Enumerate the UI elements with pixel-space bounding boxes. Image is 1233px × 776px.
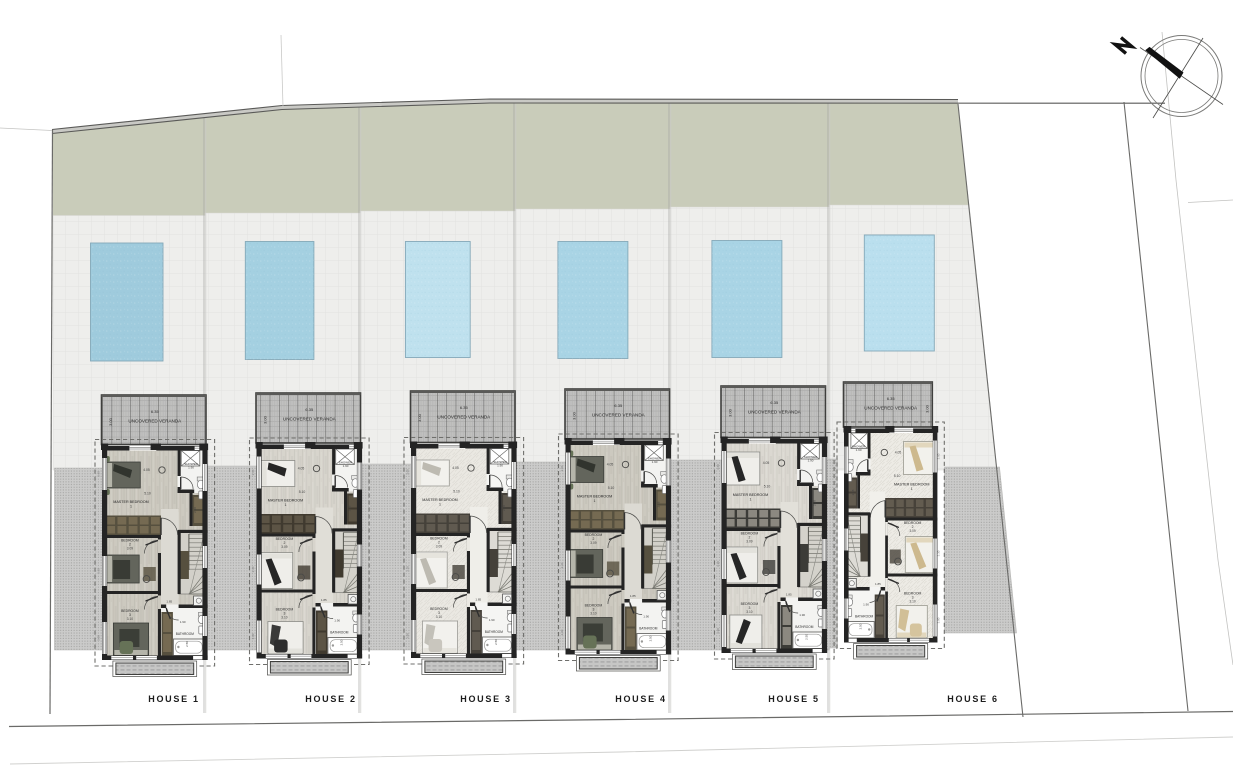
svg-text:1.90: 1.90: [652, 460, 658, 464]
svg-text:MASTER BEDROOM: MASTER BEDROOM: [577, 495, 612, 499]
svg-text:1: 1: [130, 505, 132, 509]
svg-text:3.00: 3.00: [727, 408, 732, 417]
svg-text:1.85: 1.85: [166, 600, 172, 604]
svg-text:6.35: 6.35: [614, 403, 623, 408]
svg-text:3.30: 3.30: [405, 566, 409, 572]
svg-text:1.85: 1.85: [875, 582, 881, 586]
svg-text:BATHROOM: BATHROOM: [639, 627, 658, 631]
svg-text:BATHROOM: BATHROOM: [855, 615, 874, 619]
svg-text:1.90: 1.90: [188, 466, 194, 470]
svg-text:3.10: 3.10: [746, 610, 752, 614]
svg-text:3.00: 3.00: [262, 415, 267, 424]
svg-text:1: 1: [750, 498, 752, 502]
svg-text:1.90: 1.90: [799, 613, 805, 617]
svg-text:1.85: 1.85: [475, 598, 481, 602]
svg-text:3.30: 3.30: [251, 566, 255, 572]
svg-text:BATHROOM: BATHROOM: [795, 625, 814, 629]
svg-text:3.09: 3.09: [909, 529, 915, 533]
svg-text:1: 1: [911, 487, 913, 491]
svg-text:3.30: 3.30: [716, 561, 720, 567]
svg-text:1: 1: [439, 503, 441, 507]
svg-text:3.90: 3.90: [716, 628, 720, 634]
svg-text:3.09: 3.09: [436, 545, 442, 549]
svg-text:3.00: 3.00: [108, 417, 113, 426]
svg-text:HOUSE 4: HOUSE 4: [615, 694, 666, 704]
svg-text:2.50: 2.50: [648, 635, 652, 641]
svg-text:1.85: 1.85: [786, 593, 792, 597]
svg-text:UNCOVERED VERANDA: UNCOVERED VERANDA: [128, 419, 182, 424]
svg-text:3.60: 3.60: [560, 465, 564, 471]
svg-text:3.10: 3.10: [127, 617, 133, 621]
svg-text:UNCOVERED VERANDA: UNCOVERED VERANDA: [748, 410, 802, 415]
svg-text:2.50: 2.50: [804, 634, 808, 640]
svg-text:HOUSE 1: HOUSE 1: [148, 694, 199, 704]
svg-text:1.90: 1.90: [863, 603, 869, 607]
svg-text:3.90: 3.90: [560, 629, 564, 635]
svg-text:3.09: 3.09: [590, 541, 596, 545]
svg-text:2.18: 2.18: [851, 489, 855, 495]
svg-text:3.30: 3.30: [96, 568, 100, 574]
svg-text:MASTER BEDROOM: MASTER BEDROOM: [113, 500, 148, 504]
svg-text:1.90: 1.90: [489, 618, 495, 622]
svg-text:3.60: 3.60: [937, 453, 941, 459]
svg-text:3.10: 3.10: [590, 612, 596, 616]
svg-text:BATHROOM: BATHROOM: [330, 631, 349, 635]
svg-text:UNCOVERED VERANDA: UNCOVERED VERANDA: [437, 415, 491, 420]
svg-text:6.35: 6.35: [770, 400, 779, 405]
svg-text:1.90: 1.90: [808, 459, 814, 463]
svg-text:3.90: 3.90: [96, 635, 100, 641]
svg-text:6.35: 6.35: [460, 405, 469, 410]
svg-text:4.05: 4.05: [452, 466, 459, 470]
svg-text:3.90: 3.90: [937, 617, 941, 623]
svg-text:2.18: 2.18: [657, 501, 661, 507]
svg-text:3.00: 3.00: [417, 413, 422, 422]
svg-text:5.10: 5.10: [608, 486, 615, 490]
svg-text:3.60: 3.60: [716, 464, 720, 470]
svg-text:3.09: 3.09: [746, 540, 752, 544]
svg-text:6.35: 6.35: [305, 407, 314, 412]
svg-text:UNCOVERED VERANDA: UNCOVERED VERANDA: [864, 406, 918, 411]
svg-text:BATHROOM: BATHROOM: [485, 630, 504, 634]
svg-text:1.90: 1.90: [180, 620, 186, 624]
svg-text:3.09: 3.09: [127, 547, 133, 551]
svg-text:3.09: 3.09: [281, 545, 287, 549]
svg-text:6.35: 6.35: [887, 396, 896, 401]
svg-text:MASTER BEDROOM: MASTER BEDROOM: [268, 499, 303, 503]
svg-text:3.10: 3.10: [909, 600, 915, 604]
svg-text:4.05: 4.05: [143, 468, 150, 472]
svg-text:6.35: 6.35: [151, 409, 160, 414]
svg-text:1.85: 1.85: [321, 598, 327, 602]
svg-text:4.05: 4.05: [298, 467, 305, 471]
svg-text:4.05: 4.05: [763, 461, 770, 465]
svg-text:3.60: 3.60: [251, 469, 255, 475]
svg-text:BATHROOM: BATHROOM: [176, 632, 195, 636]
svg-text:1.90: 1.90: [643, 615, 649, 619]
svg-text:4.05: 4.05: [607, 463, 614, 467]
svg-text:3.10: 3.10: [281, 616, 287, 620]
svg-text:2.50: 2.50: [185, 641, 189, 647]
svg-text:5.10: 5.10: [894, 474, 901, 478]
svg-text:HOUSE 5: HOUSE 5: [768, 694, 819, 704]
svg-text:UNCOVERED VERANDA: UNCOVERED VERANDA: [592, 413, 646, 418]
svg-text:HOUSE 2: HOUSE 2: [305, 694, 356, 704]
svg-text:1.90: 1.90: [343, 464, 349, 468]
svg-text:4.05: 4.05: [895, 451, 902, 455]
svg-text:MASTER BEDROOM: MASTER BEDROOM: [422, 498, 457, 502]
svg-text:3.30: 3.30: [560, 562, 564, 568]
svg-text:HOUSE 6: HOUSE 6: [947, 694, 998, 704]
svg-text:2.50: 2.50: [858, 623, 862, 629]
svg-text:5.10: 5.10: [764, 485, 771, 489]
svg-text:3.10: 3.10: [436, 615, 442, 619]
svg-text:3.90: 3.90: [405, 633, 409, 639]
svg-text:1: 1: [594, 499, 596, 503]
svg-text:2.18: 2.18: [813, 500, 817, 506]
svg-text:1.85: 1.85: [630, 594, 636, 598]
svg-text:3.60: 3.60: [405, 469, 409, 475]
svg-text:3.90: 3.90: [251, 633, 255, 639]
svg-text:3.00: 3.00: [925, 404, 930, 413]
svg-text:2.18: 2.18: [193, 507, 197, 513]
svg-text:2.50: 2.50: [339, 639, 343, 645]
svg-text:5.10: 5.10: [144, 492, 151, 496]
svg-text:UNCOVERED VERANDA: UNCOVERED VERANDA: [283, 417, 337, 422]
svg-text:1.90: 1.90: [856, 448, 862, 452]
svg-text:1: 1: [285, 503, 287, 507]
svg-text:MASTER BEDROOM: MASTER BEDROOM: [733, 493, 768, 497]
svg-text:3.30: 3.30: [937, 550, 941, 556]
svg-text:3.60: 3.60: [96, 471, 100, 477]
svg-text:2.50: 2.50: [494, 639, 498, 645]
svg-text:1.90: 1.90: [334, 619, 340, 623]
svg-text:1.90: 1.90: [497, 464, 503, 468]
svg-text:5.10: 5.10: [299, 490, 306, 494]
svg-text:3.00: 3.00: [571, 411, 576, 420]
svg-text:MASTER BEDROOM: MASTER BEDROOM: [894, 483, 929, 487]
svg-text:2.18: 2.18: [502, 505, 506, 511]
svg-text:2.18: 2.18: [348, 505, 352, 511]
svg-text:5.10: 5.10: [453, 490, 460, 494]
svg-text:HOUSE 3: HOUSE 3: [460, 694, 511, 704]
